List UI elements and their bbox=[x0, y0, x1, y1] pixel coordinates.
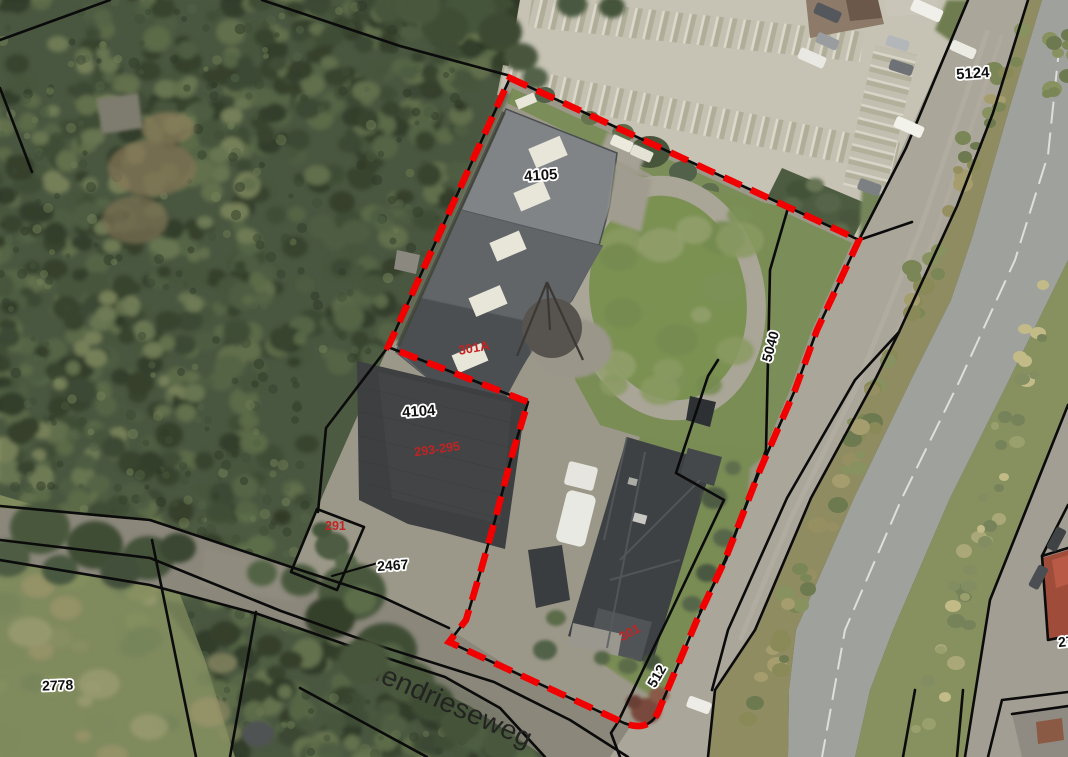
svg-text:291: 291 bbox=[325, 519, 346, 533]
svg-text:4105: 4105 bbox=[524, 166, 558, 185]
svg-text:2467: 2467 bbox=[377, 556, 409, 574]
svg-text:4104: 4104 bbox=[402, 402, 437, 421]
svg-text:27: 27 bbox=[1057, 633, 1068, 651]
svg-text:5124: 5124 bbox=[956, 64, 991, 83]
svg-text:2778: 2778 bbox=[42, 677, 74, 694]
